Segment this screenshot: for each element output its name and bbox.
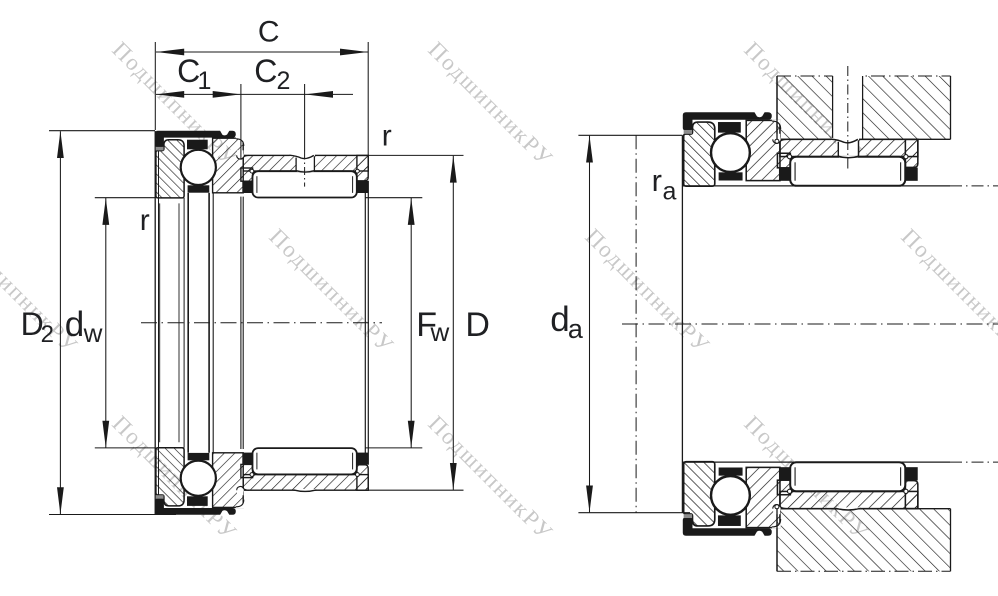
svg-text:2: 2 [41, 321, 54, 348]
svg-text:d: d [550, 300, 569, 339]
svg-text:1: 1 [198, 67, 212, 95]
svg-text:r: r [382, 120, 392, 153]
svg-text:w: w [430, 317, 450, 347]
svg-text:2: 2 [277, 67, 291, 95]
svg-text:a: a [568, 314, 584, 344]
svg-text:r: r [652, 163, 662, 198]
svg-text:D: D [465, 306, 490, 344]
svg-text:r: r [140, 204, 150, 237]
svg-text:d: d [65, 305, 84, 344]
svg-text:C: C [258, 16, 280, 49]
svg-text:a: a [663, 178, 677, 206]
svg-text:C: C [254, 53, 277, 89]
svg-text:w: w [83, 318, 103, 348]
